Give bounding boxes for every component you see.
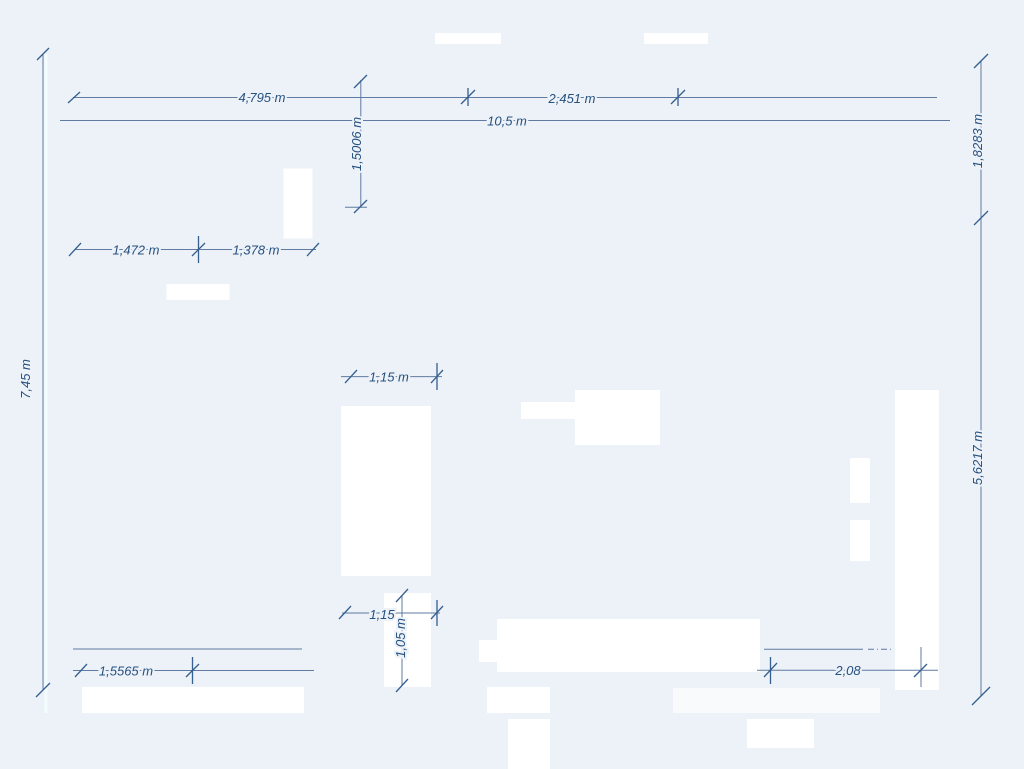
- svg-text:1,5006 m: 1,5006 m: [349, 117, 364, 171]
- svg-text:2,451 m: 2,451 m: [548, 91, 596, 106]
- svg-text:1,5565 m: 1,5565 m: [99, 664, 153, 679]
- svg-text:2,08: 2,08: [834, 663, 861, 678]
- svg-text:1,8283 m: 1,8283 m: [970, 114, 985, 168]
- svg-text:1,15: 1,15: [369, 607, 395, 622]
- svg-text:1,05 m: 1,05 m: [393, 618, 408, 658]
- svg-text:1,472 m: 1,472 m: [113, 243, 160, 258]
- svg-text:10,5 m: 10,5 m: [487, 114, 527, 129]
- svg-text:7,45 m: 7,45 m: [18, 359, 33, 399]
- svg-text:4,795 m: 4,795 m: [239, 90, 286, 105]
- svg-text:5,6217 m: 5,6217 m: [970, 431, 985, 485]
- svg-text:1,378 m: 1,378 m: [233, 243, 280, 258]
- svg-text:1,15 m: 1,15 m: [369, 370, 409, 385]
